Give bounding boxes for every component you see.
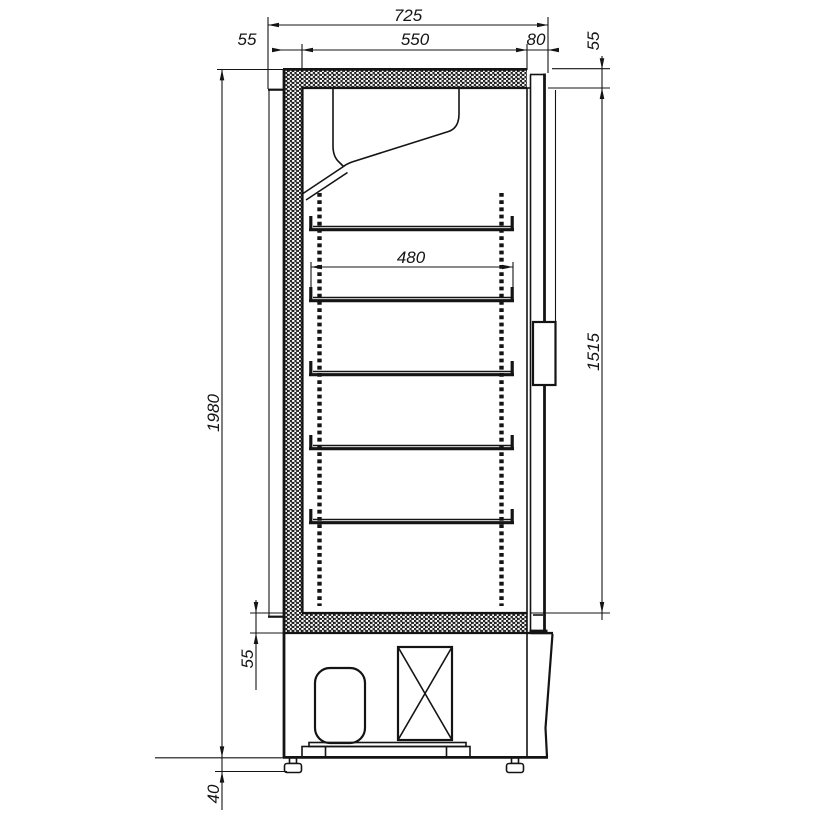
dim-top-row: 55 550 80	[238, 30, 559, 70]
tray-left-wall	[333, 89, 344, 167]
insulation-ceiling	[283, 70, 527, 88]
evaporator-tray	[303, 89, 459, 201]
dim-left-column: 1980 40	[155, 69, 287, 810]
door-handle	[533, 322, 556, 385]
dim-label-1515: 1515	[584, 333, 603, 371]
dimension-annotations: 725 55 550 80 480	[155, 6, 610, 810]
shelf-4	[309, 435, 514, 450]
dim-label-80: 80	[527, 30, 546, 49]
dim-label-55-wall: 55	[238, 30, 257, 49]
insulation-back-wall	[283, 88, 302, 613]
shelf-5	[309, 509, 514, 524]
base-bar	[302, 747, 470, 758]
dim-label-550: 550	[401, 30, 430, 49]
dim-label-55-roof: 55	[584, 31, 603, 50]
foot-right	[507, 758, 524, 773]
insulation-floor	[283, 613, 527, 633]
shelf-2	[309, 287, 514, 302]
drawing-canvas: 725 55 550 80 480	[0, 0, 830, 830]
shelf-1	[309, 216, 514, 231]
foot-left	[285, 758, 302, 773]
drain-pipe-lower	[306, 173, 348, 201]
dim-label-55-floor: 55	[238, 649, 257, 668]
technical-drawing: 725 55 550 80 480	[0, 0, 830, 830]
cabinet-body	[268, 69, 553, 758]
dim-label-40: 40	[204, 784, 223, 803]
dim-shelf-width: 480	[311, 248, 513, 288]
machine-compartment	[285, 634, 553, 773]
louver-panel-slant	[546, 634, 553, 757]
dim-floor-thickness: 55	[238, 600, 284, 690]
tray-sloped-floor	[344, 89, 460, 167]
dim-label-480: 480	[397, 248, 426, 267]
interior	[303, 89, 514, 607]
shelf-3	[309, 361, 514, 376]
dim-label-1980: 1980	[204, 394, 223, 432]
dim-label-725: 725	[394, 6, 423, 25]
compressor	[315, 668, 365, 743]
door-assembly	[527, 74, 556, 633]
